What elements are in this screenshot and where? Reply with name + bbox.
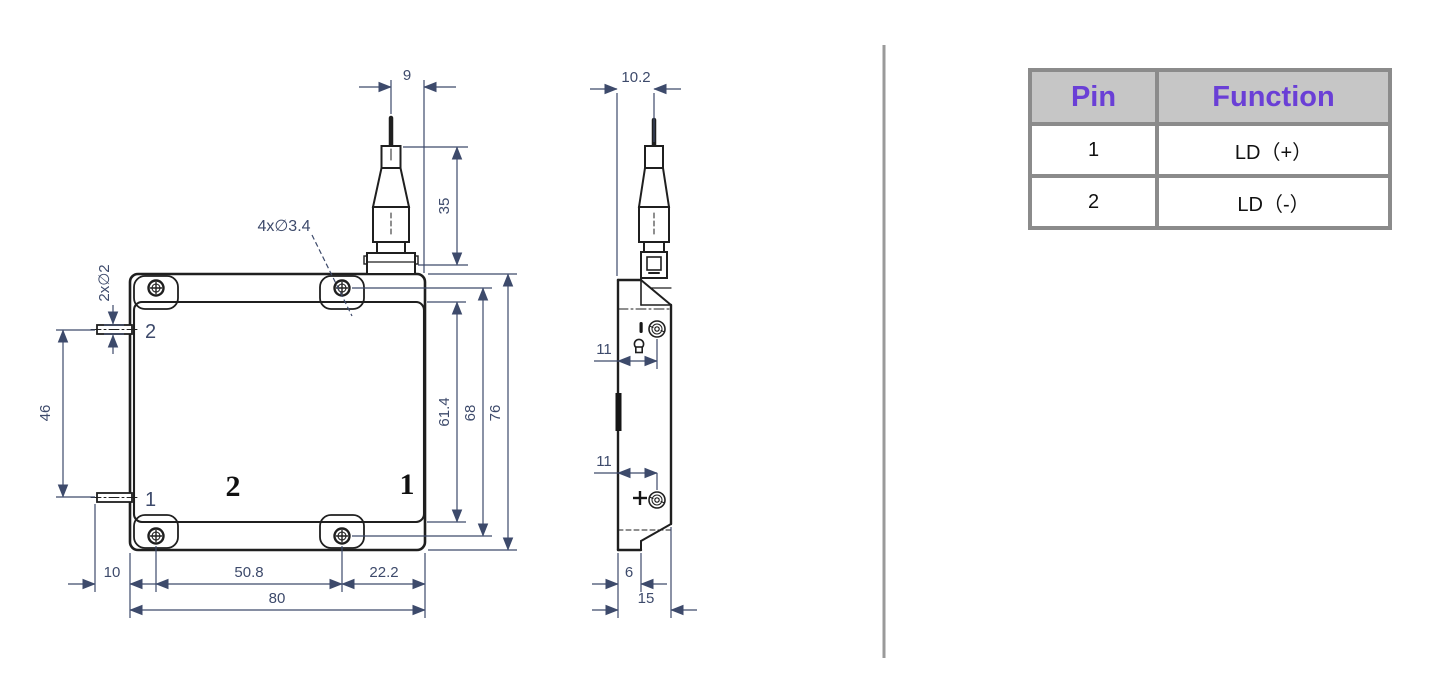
side-screw-top bbox=[649, 321, 665, 337]
svg-text:76: 76 bbox=[487, 405, 504, 422]
dim-pin-spacing: 46 bbox=[37, 330, 95, 497]
svg-text:50.8: 50.8 bbox=[234, 564, 263, 581]
panel-label-2: 2 bbox=[226, 470, 241, 503]
pin-2 bbox=[91, 325, 140, 334]
panel-label-1: 1 bbox=[400, 468, 415, 501]
svg-text:9: 9 bbox=[403, 67, 411, 84]
svg-text:61.4: 61.4 bbox=[436, 397, 453, 426]
svg-text:22.2: 22.2 bbox=[369, 564, 398, 581]
svg-text:6: 6 bbox=[625, 564, 633, 581]
svg-text:15: 15 bbox=[638, 590, 655, 607]
dim-hole-to-edge: 22.2 bbox=[342, 553, 425, 618]
svg-text:4x∅3.4: 4x∅3.4 bbox=[257, 218, 310, 235]
function-column-header: Function bbox=[1157, 70, 1390, 124]
plus-mark bbox=[633, 491, 647, 505]
minus-mark bbox=[640, 322, 643, 333]
mounting-hole-icon bbox=[335, 529, 350, 544]
svg-text:11: 11 bbox=[596, 453, 612, 470]
pin-1 bbox=[91, 493, 140, 502]
dim-screw-offset-top: 11 bbox=[594, 339, 657, 369]
table-header-row: Pin Function bbox=[1030, 70, 1390, 124]
table-row: 1 LD（+） bbox=[1030, 124, 1390, 176]
pin-1-label: 1 bbox=[145, 489, 156, 511]
mounting-hole-icon bbox=[335, 281, 350, 296]
svg-text:68: 68 bbox=[462, 405, 479, 422]
dim-panel-height: 61.4 bbox=[427, 302, 466, 522]
pin-function-cell: LD（-） bbox=[1157, 176, 1390, 228]
dim-total-depth: 15 bbox=[592, 527, 697, 618]
front-body bbox=[130, 274, 425, 550]
pin-number-cell: 1 bbox=[1030, 124, 1157, 176]
fiber-connector-front bbox=[364, 118, 418, 274]
side-screw-bottom bbox=[649, 492, 665, 508]
svg-text:2x∅2: 2x∅2 bbox=[96, 264, 113, 301]
table-row: 2 LD（-） bbox=[1030, 176, 1390, 228]
svg-text:80: 80 bbox=[269, 590, 286, 607]
side-body bbox=[616, 280, 672, 550]
svg-text:35: 35 bbox=[436, 198, 453, 215]
side-slot bbox=[616, 393, 622, 431]
side-view: 10.2 11 11 6 15 bbox=[590, 69, 697, 618]
mounting-hole-icon bbox=[149, 281, 164, 296]
pin-column-header: Pin bbox=[1030, 70, 1157, 124]
dim-connector-height: 35 bbox=[403, 147, 468, 265]
callout-pin-diameter: 2x∅2 bbox=[96, 264, 124, 354]
keyhole-mark bbox=[634, 339, 643, 352]
svg-text:46: 46 bbox=[37, 405, 54, 422]
pin-function-table: Pin Function 1 LD（+） 2 LD（-） bbox=[1028, 68, 1392, 230]
fiber-connector-side bbox=[639, 120, 669, 278]
svg-text:10: 10 bbox=[104, 564, 121, 581]
pin-function-cell: LD（+） bbox=[1157, 124, 1390, 176]
svg-text:10.2: 10.2 bbox=[621, 69, 650, 86]
dim-body-width: 80 bbox=[130, 590, 425, 610]
dim-hole-spacing-horizontal: 50.8 bbox=[156, 546, 342, 592]
pin-2-label: 2 bbox=[145, 321, 156, 343]
dim-screw-offset-bottom: 11 bbox=[594, 453, 657, 490]
pin-number-cell: 2 bbox=[1030, 176, 1157, 228]
technical-drawing-page: 2 1 2 1 9 35 4x∅3.4 2x∅2 bbox=[0, 0, 1442, 685]
svg-text:11: 11 bbox=[596, 341, 612, 358]
dim-connector-offset: 10.2 bbox=[590, 69, 681, 276]
dim-base-width: 6 bbox=[592, 553, 667, 618]
front-view: 2 1 2 1 9 35 4x∅3.4 2x∅2 bbox=[37, 67, 517, 618]
mounting-hole-icon bbox=[149, 529, 164, 544]
